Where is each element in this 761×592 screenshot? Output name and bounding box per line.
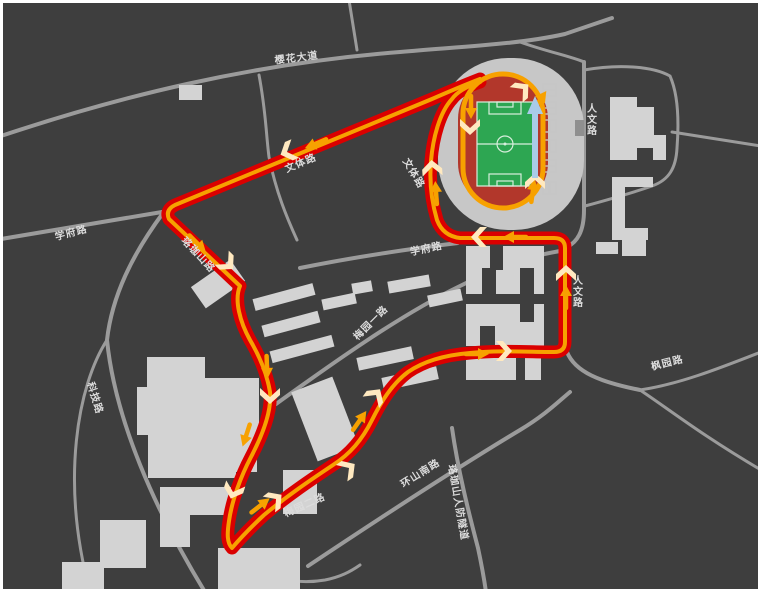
map-canvas: 樱花大道 人文路 文体路 文体路 学府路 珞珈山路 学府路 梅园一路 人文路 枫…: [0, 0, 761, 592]
field-center-dot: [504, 143, 507, 146]
building: [218, 548, 300, 590]
building: [653, 135, 666, 160]
building: [147, 357, 205, 387]
building: [637, 107, 654, 148]
building-courtyard: [480, 326, 495, 346]
building: [622, 238, 646, 256]
building: [179, 85, 202, 100]
map-background: [0, 0, 761, 592]
label-renwen-road-east: 人文路: [571, 274, 583, 308]
stadium-stand: [575, 120, 584, 136]
campus-map: 樱花大道 人文路 文体路 文体路 学府路 珞珈山路 学府路 梅园一路 人文路 枫…: [0, 0, 761, 592]
building: [100, 520, 146, 568]
building-courtyard: [490, 246, 503, 270]
building-courtyard: [520, 268, 534, 294]
building: [596, 242, 618, 254]
building: [466, 358, 516, 380]
building: [62, 562, 104, 592]
building-courtyard: [520, 304, 534, 322]
building: [525, 358, 541, 380]
soccer-field: [477, 102, 533, 186]
label-renwen-road-north: 人文路: [585, 102, 597, 136]
building: [610, 97, 637, 160]
building-courtyard: [482, 268, 496, 294]
